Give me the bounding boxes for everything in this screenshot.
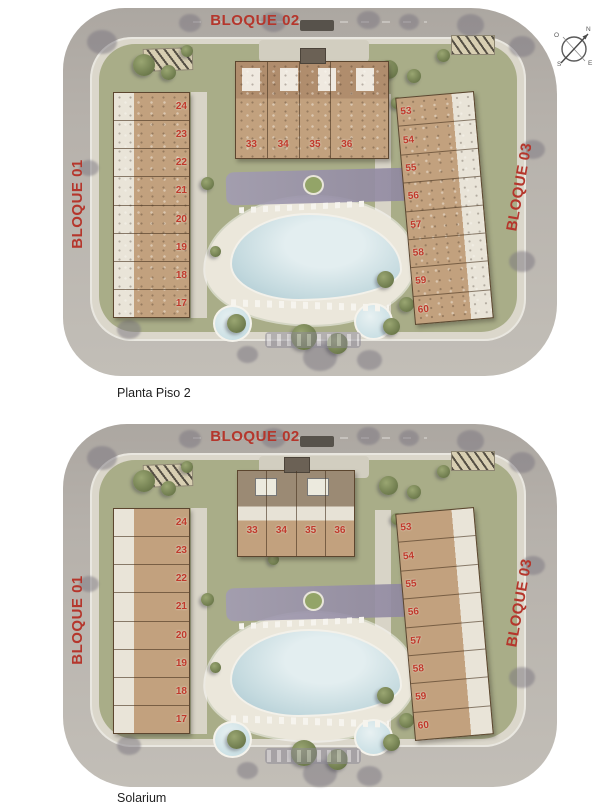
fountain [303,591,324,611]
unit-number: 22 [114,149,189,177]
pergola [451,35,495,55]
tree-icon [133,470,155,492]
unit-number: 18 [114,262,189,290]
tree-icon [161,481,176,496]
tree-icon [227,730,246,749]
tree-icon [181,45,193,57]
unit-number: 21 [114,593,189,621]
tree-shadow [87,446,117,470]
bloque02-building: 33343536 [235,61,389,159]
tree-shadow [179,430,201,448]
tree-icon [399,713,414,728]
plan-title-piso2: Planta Piso 2 [117,386,191,400]
tree-shadow [509,667,535,688]
tree-shadow [457,14,484,36]
tree-icon [181,461,193,473]
tree-shadow [509,251,535,272]
tree-icon [383,318,400,335]
unit-number: 24 [114,93,189,121]
unit-number: 17 [114,706,189,733]
tree-shadow [237,346,258,363]
unit-number: 33 [238,471,267,556]
unit-number: 19 [114,234,189,262]
tree-icon [379,476,398,495]
bloque01-building: 2423222120191817 [113,508,190,734]
site-plan-solarium: 2423222120191817 33343536 53545556575859… [63,424,557,787]
unit-number: 23 [114,537,189,565]
tree-icon [161,65,176,80]
unit-number: 60 [414,290,493,324]
tree-icon [399,297,414,312]
tree-icon [201,593,214,606]
unit-number: 23 [114,121,189,149]
tree-shadow [117,736,141,755]
tree-shadow [509,452,535,473]
compass-west-label: O [554,32,559,39]
unit-number: 35 [297,471,326,556]
entrance-gate [300,436,334,447]
tree-icon [407,69,421,83]
bloque02-unit-numbers: 33343536 [236,62,362,158]
tree-shadow [357,766,382,786]
tree-icon [437,465,450,478]
shaded-loungers [265,332,361,348]
bloque01-building: 2423222120191817 [113,92,190,318]
entrance-gate [300,20,334,31]
shaded-loungers [265,748,361,764]
walkway-left [191,92,207,318]
plan-sheet: { "compass": { "north": "N", "south": "S… [0,0,606,811]
tree-shadow [399,14,419,30]
tree-shadow [87,30,117,54]
site-plan-planta-piso-2: 2423222120191817 33343536 53545556575859… [63,8,557,376]
tree-shadow [509,36,535,57]
unit-number: 21 [114,177,189,205]
tree-shadow [399,430,419,446]
compass-east-label: E [588,60,592,67]
tree-icon [201,177,214,190]
bloque01-label: BLOQUE 01 [70,572,86,668]
tree-icon [210,662,221,673]
unit-number: 36 [331,62,362,158]
unit-number: 20 [114,622,189,650]
tree-icon [383,734,400,751]
walkway-left [191,508,207,734]
bloque01-unit-numbers: 2423222120191817 [114,93,189,317]
unit-number: 24 [114,509,189,537]
unit-number: 34 [267,471,296,556]
unit-number: 20 [114,206,189,234]
unit-number: 17 [114,290,189,317]
tree-icon [407,485,421,499]
unit-number: 34 [268,62,300,158]
tree-icon [437,49,450,62]
unit-number: 19 [114,650,189,678]
tree-icon [227,314,246,333]
bloque02-label: BLOQUE 02 [205,13,305,29]
compass-north-label: N [586,26,591,33]
tree-icon [377,687,394,704]
compass-south-label: S [557,61,561,68]
unit-number: 22 [114,565,189,593]
bloque01-unit-numbers: 2423222120191817 [114,509,189,733]
unit-number: 33 [236,62,268,158]
tree-icon [210,246,221,257]
bloque02-unit-numbers: 33343536 [238,471,354,556]
tree-shadow [179,14,201,32]
bloque01-label: BLOQUE 01 [70,156,86,252]
tree-icon [133,54,155,76]
tree-shadow [237,762,258,779]
unit-number: 35 [300,62,332,158]
pergola [451,451,495,471]
compass: N O S E [551,25,597,71]
bloque02-building: 33343536 [237,470,355,557]
unit-number: 18 [114,678,189,706]
tree-shadow [357,350,382,370]
plan-title-solarium: Solarium [117,791,166,805]
unit-number: 60 [414,706,493,740]
unit-number: 36 [326,471,354,556]
tree-shadow [117,320,141,339]
tree-shadow [457,430,484,452]
tree-icon [377,271,394,288]
bloque02-label: BLOQUE 02 [205,429,305,445]
fountain [303,175,324,195]
